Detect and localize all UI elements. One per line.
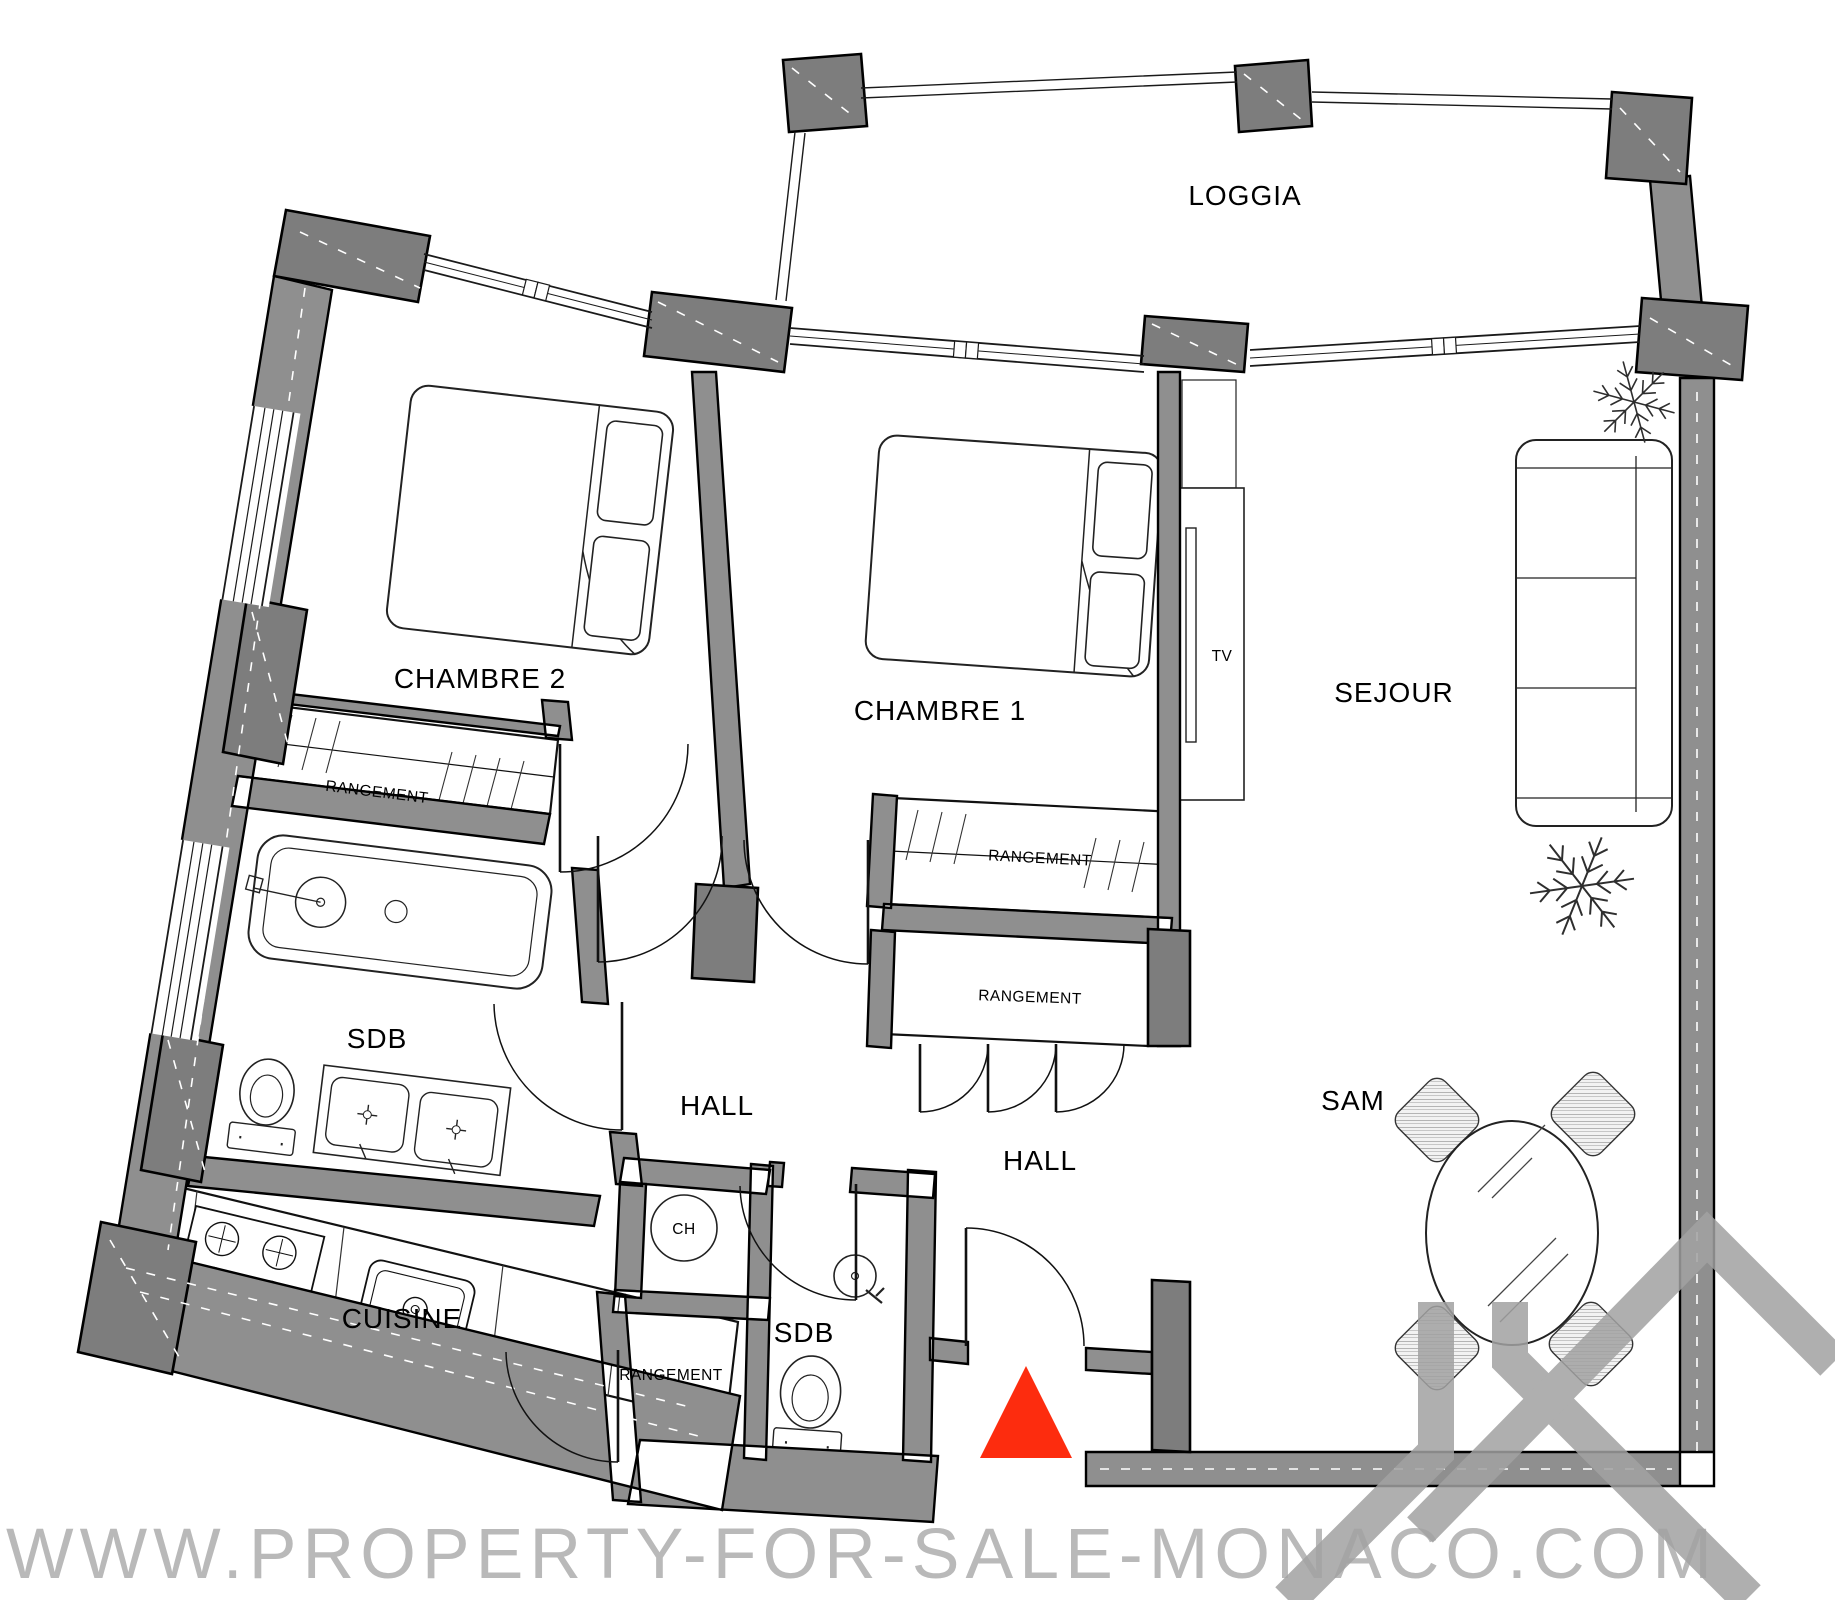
label-rangement-hall: RANGEMENT [978,987,1082,1008]
watermark-text: WWW.PROPERTY-FOR-SALE-MONACO.COM [6,1515,1718,1594]
entrance-triangle-marker [980,1366,1072,1458]
label-ch: CH [672,1221,695,1238]
sofa-icon [1516,440,1672,826]
double-sink-icon [313,1065,511,1179]
room-label-chambre1: CHAMBRE 1 [854,695,1026,726]
room-label-hall-entry: HALL [1003,1145,1077,1176]
floor-plan-page: LOGGIA CHAMBRE 2 CHAMBRE 1 SEJOUR SAM HA… [0,0,1835,1600]
toilet-guest-icon [772,1354,847,1458]
room-label-loggia: LOGGIA [1188,180,1301,211]
room-label-cuisine: CUISINE [342,1303,463,1334]
room-label-chambre2: CHAMBRE 2 [394,663,566,694]
plant-icon [1523,828,1641,944]
bed-chambre1-icon [865,434,1164,677]
floor-plan-drawing: LOGGIA CHAMBRE 2 CHAMBRE 1 SEJOUR SAM HA… [0,0,1835,1600]
label-rangement-entry: RANGEMENT [619,1367,723,1384]
room-label-sam: SAM [1321,1085,1385,1116]
round-sink-icon [834,1255,884,1303]
label-tv: TV [1212,648,1233,665]
bathtub-icon [238,831,555,991]
tv-cabinet-icon [1180,380,1244,800]
room-label-hall-main: HALL [680,1090,754,1121]
toilet-main-icon [227,1055,304,1155]
room-label-sdb-main: SDB [347,1023,408,1054]
bed-chambre2-icon [385,384,675,656]
room-label-sdb-guest: SDB [774,1317,835,1348]
room-label-sejour: SEJOUR [1334,677,1454,708]
